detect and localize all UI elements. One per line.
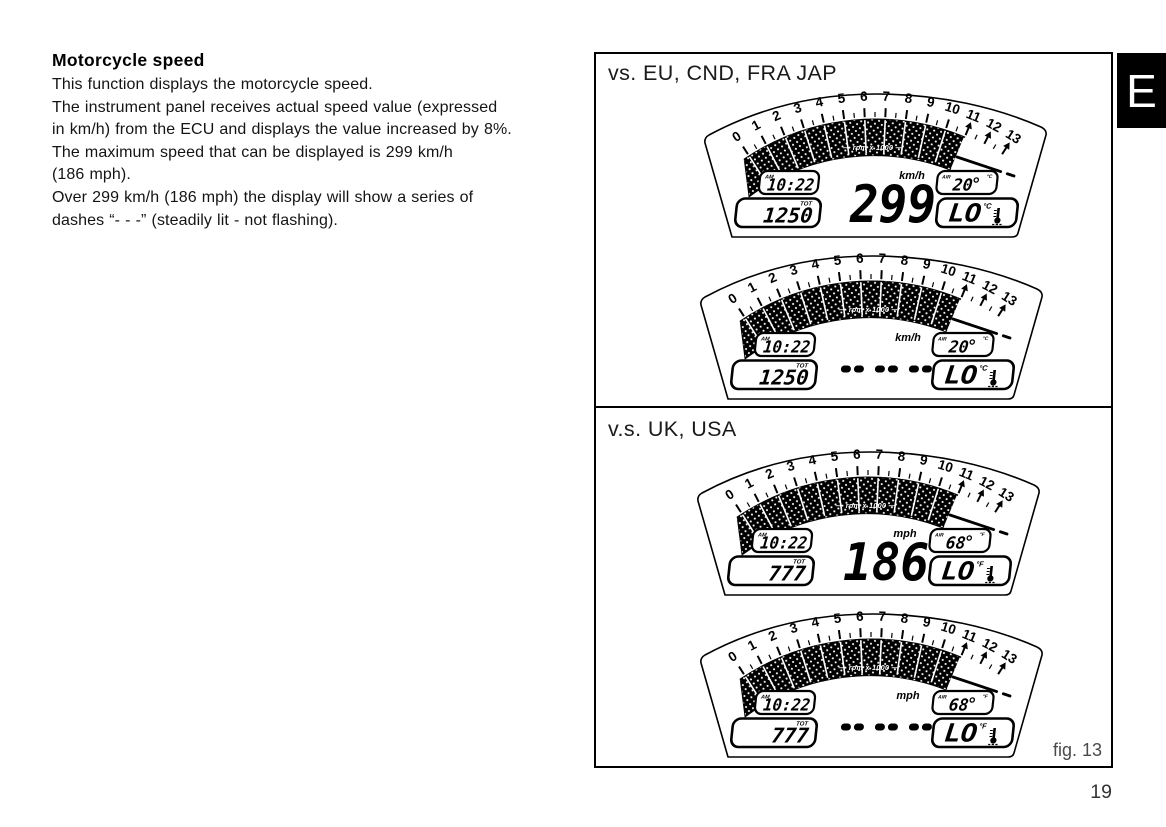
svg-text:7: 7 <box>882 91 890 104</box>
svg-text:777: 777 <box>770 724 810 748</box>
instrument-panel-eu-overspeed: 0 1 2 3 4 5 6 7 8 9 10 11 12 13 <box>697 253 1047 405</box>
instrument-panel-uk-speed: 0 1 2 3 4 5 6 7 8 9 10 11 12 13 <box>694 449 1044 601</box>
svg-text:— rpm x 1000 —: — rpm x 1000 — <box>835 503 897 510</box>
svg-text:7: 7 <box>875 449 883 462</box>
svg-text:6: 6 <box>856 611 865 624</box>
figure-section-divider <box>594 406 1113 408</box>
edition-tab: E <box>1117 53 1166 128</box>
svg-text:10:22: 10:22 <box>759 534 808 553</box>
page-number: 19 <box>1062 781 1112 804</box>
article-paragraph: The instrument panel receives actual spe… <box>52 97 582 142</box>
svg-text:LO: LO <box>943 719 979 748</box>
svg-text:— rpm x 1000 —: — rpm x 1000 — <box>842 145 904 152</box>
svg-text:6: 6 <box>860 91 869 104</box>
svg-text:°F: °F <box>979 722 988 731</box>
figure-caption: fig. 13 <box>1030 740 1102 761</box>
section-label-eu: vs. EU, CND, FRA JAP <box>608 61 837 86</box>
svg-text:°C: °C <box>979 364 989 373</box>
svg-text:5: 5 <box>833 253 843 268</box>
svg-text:AIR: AIR <box>941 175 952 181</box>
svg-text:68: 68 <box>945 534 967 553</box>
svg-text:6: 6 <box>856 253 865 266</box>
instrument-panel-uk-overspeed: 0 1 2 3 4 5 6 7 8 9 10 11 12 13 <box>697 611 1047 763</box>
svg-text:5: 5 <box>837 91 847 106</box>
svg-text:7: 7 <box>878 253 886 266</box>
svg-text:mph: mph <box>896 690 920 702</box>
svg-text:AIR: AIR <box>934 533 945 539</box>
svg-text:LO: LO <box>940 557 976 586</box>
edition-tab-letter: E <box>1126 64 1157 118</box>
article-title: Motorcycle speed <box>52 50 582 71</box>
manual-page: Motorcycle speed This function displays … <box>0 0 1166 827</box>
svg-text:299: 299 <box>849 175 936 235</box>
article-paragraph: This function displays the motorcycle sp… <box>52 74 582 97</box>
svg-text:— rpm x 1000 —: — rpm x 1000 — <box>838 307 900 314</box>
svg-text:AIR: AIR <box>937 695 948 701</box>
svg-text:1250: 1250 <box>762 204 814 228</box>
svg-text:°C: °C <box>982 336 989 342</box>
svg-text:6: 6 <box>853 449 862 462</box>
svg-text:7: 7 <box>878 611 886 624</box>
svg-text:20: 20 <box>951 176 974 195</box>
svg-text:°C: °C <box>983 202 993 211</box>
svg-text:1250: 1250 <box>758 366 810 390</box>
article-paragraph: Over 299 km/h (186 mph) the display will… <box>52 187 582 232</box>
article-paragraph: The maximum speed that can be displayed … <box>52 142 582 187</box>
svg-text:— rpm x 1000 —: — rpm x 1000 — <box>838 665 900 672</box>
svg-text:10:22: 10:22 <box>762 696 811 715</box>
svg-text:10:22: 10:22 <box>766 176 815 195</box>
section-label-uk: v.s. UK, USA <box>608 417 737 442</box>
instrument-panel-eu-speed: 0 1 2 3 4 5 6 7 8 9 10 11 12 13 <box>701 91 1051 243</box>
svg-text:LO: LO <box>947 199 983 228</box>
svg-text:777: 777 <box>767 562 807 586</box>
svg-text:LO: LO <box>943 361 979 390</box>
svg-text:AIR: AIR <box>937 337 948 343</box>
svg-text:5: 5 <box>833 611 843 626</box>
svg-text:°C: °C <box>986 174 993 180</box>
svg-text:186: 186 <box>843 533 929 593</box>
svg-text:68: 68 <box>948 696 970 715</box>
article: Motorcycle speed This function displays … <box>52 50 582 232</box>
svg-text:20: 20 <box>947 338 970 357</box>
svg-text:km/h: km/h <box>895 332 921 344</box>
svg-text:5: 5 <box>830 449 840 464</box>
svg-text:°F: °F <box>976 560 985 569</box>
svg-text:10:22: 10:22 <box>762 338 811 357</box>
